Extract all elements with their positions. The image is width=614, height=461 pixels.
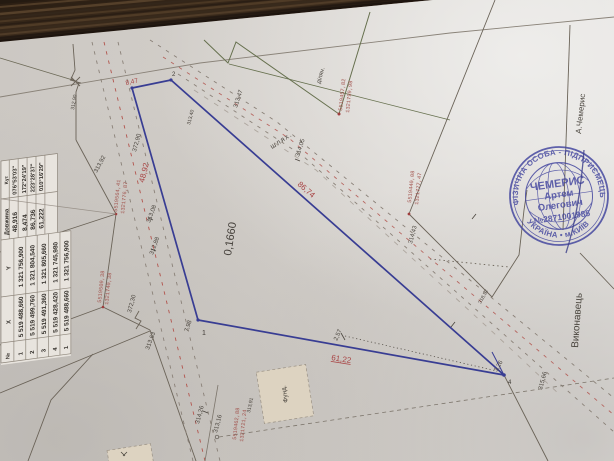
svg-text:010°16'29": 010°16'29" (39, 161, 45, 191)
svg-text:61,222: 61,222 (39, 208, 46, 229)
svg-text:223°28'37": 223°28'37" (31, 163, 37, 193)
svg-text:5 519 488,660: 5 519 488,660 (18, 296, 25, 338)
svg-text:5 519 491,360: 5 519 491,360 (41, 293, 48, 335)
svg-text:Кут: Кут (4, 175, 10, 185)
svg-text:1 321 805,660: 1 321 805,660 (41, 243, 48, 285)
svg-text:1 321 756,900: 1 321 756,900 (18, 246, 25, 288)
svg-text:1: 1 (202, 330, 206, 337)
svg-text:1 321 745,980: 1 321 745,980 (53, 241, 60, 283)
svg-text:5 519 488,660: 5 519 488,660 (64, 289, 71, 331)
svg-text:48,916: 48,916 (12, 211, 19, 232)
svg-text:86,736: 86,736 (30, 209, 37, 230)
svg-text:172°24'19": 172°24'19" (22, 164, 28, 194)
svg-text:1 321 804,540: 1 321 804,540 (30, 244, 37, 286)
svg-text:Довжина: Довжина (4, 208, 10, 236)
svg-text:X: X (6, 319, 12, 324)
svg-text:№: № (5, 352, 11, 359)
svg-text:5 519 428,420: 5 519 428,420 (53, 291, 60, 333)
svg-text:1 321 756,900: 1 321 756,900 (64, 239, 71, 281)
svg-text:076°53'03": 076°53'03" (12, 165, 18, 195)
svg-text:8,474: 8,474 (22, 213, 29, 231)
svg-text:5 519 499,760: 5 519 499,760 (30, 294, 37, 336)
svg-text:Y: Y (6, 265, 12, 270)
